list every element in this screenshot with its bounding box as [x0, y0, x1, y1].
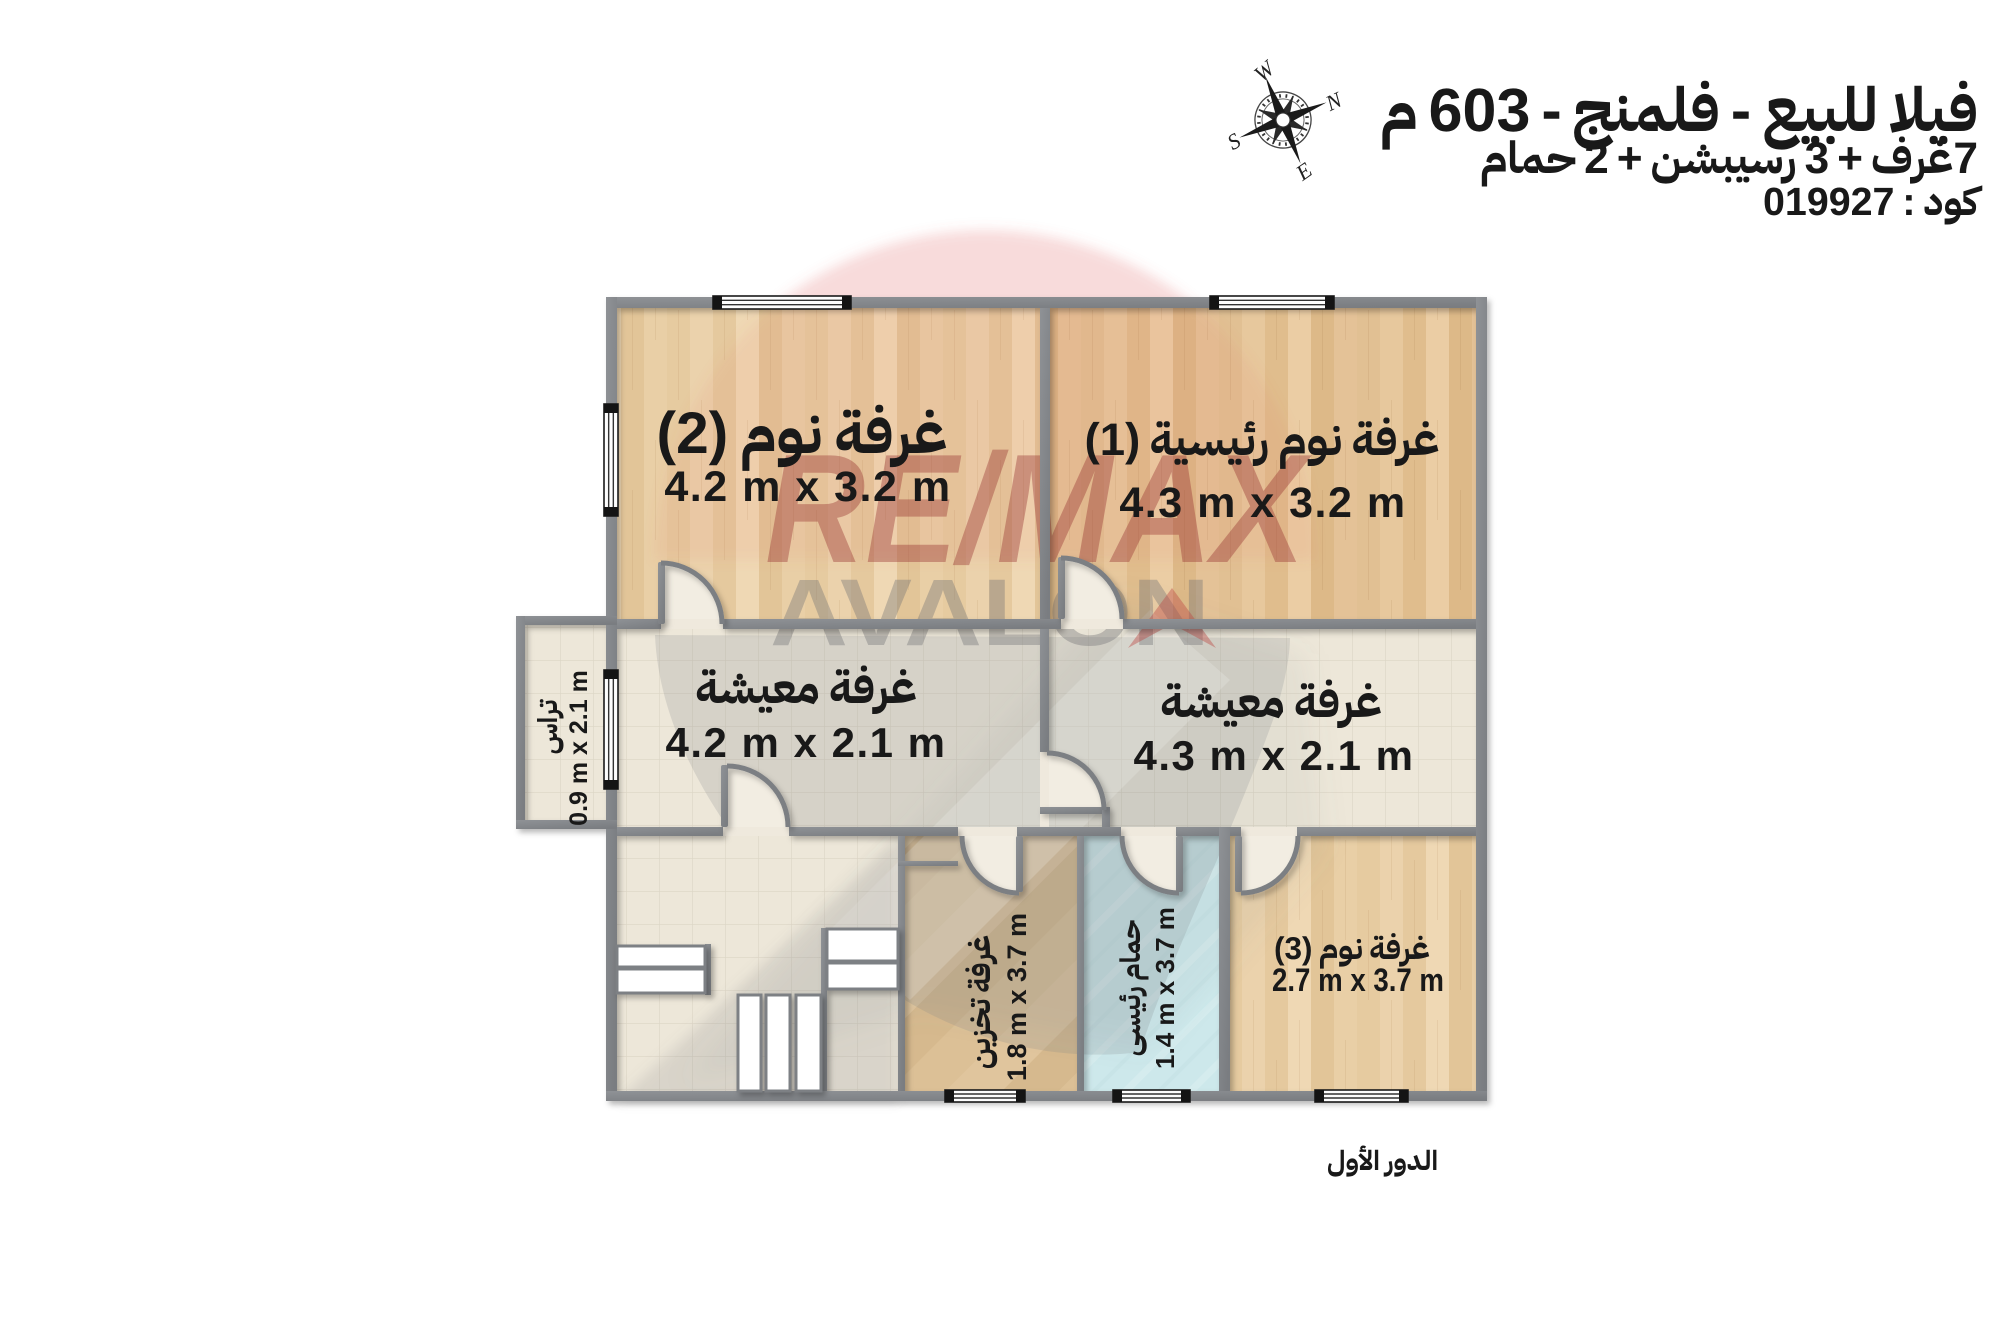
- svg-text:4.2 m x 2.1 m: 4.2 m x 2.1 m: [666, 719, 947, 766]
- svg-text:1.4 m x 3.7 m: 1.4 m x 3.7 m: [1150, 907, 1180, 1069]
- svg-text:0.9 m x 2.1 m: 0.9 m x 2.1 m: [565, 670, 593, 826]
- svg-text:AVALON: AVALON: [770, 560, 1210, 666]
- svg-text:2.7 m x 3.7 m: 2.7 m x 3.7 m: [1272, 962, 1444, 998]
- svg-text:4.2 m x 3.2 m: 4.2 m x 3.2 m: [664, 463, 951, 511]
- svg-text:4.3 m x 3.2 m: 4.3 m x 3.2 m: [1119, 479, 1406, 527]
- svg-text:1.8 m x 3.7 m: 1.8 m x 3.7 m: [1002, 913, 1032, 1081]
- svg-text:4.3 m x 2.1 m: 4.3 m x 2.1 m: [1134, 732, 1415, 779]
